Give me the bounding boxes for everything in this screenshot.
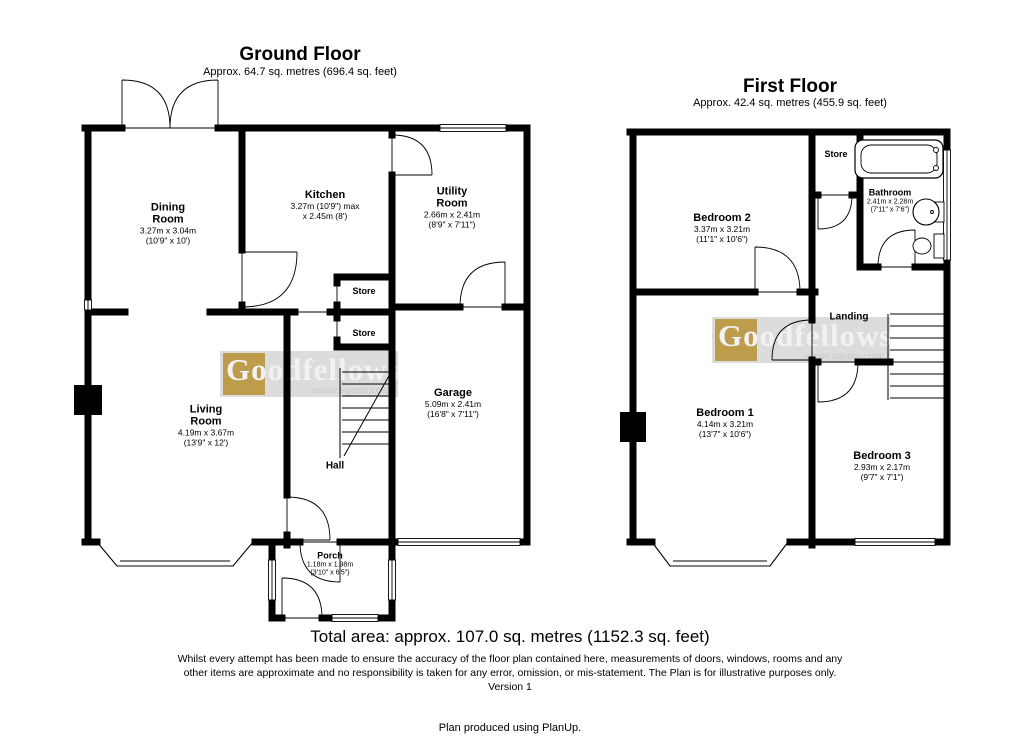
- bath-tap: [934, 166, 939, 171]
- stairs-first: [888, 314, 944, 400]
- first-floor-title: First Floor: [743, 76, 837, 98]
- room-label-garage: Garage 5.09m x 2.41m (16'8" x 7'11"): [425, 387, 481, 419]
- room-label-store-first-floor: Store: [824, 150, 847, 160]
- version-text: Version 1: [0, 681, 1020, 693]
- toilet-cistern: [934, 234, 944, 258]
- room-label-hall: Hall: [326, 461, 344, 472]
- bath-tap: [934, 148, 939, 153]
- chimney-breast-first: [620, 412, 646, 442]
- ground-floor-title: Ground Floor: [239, 44, 360, 66]
- ground-floor-doors: [122, 80, 505, 618]
- floorplan-page: Goodfellows estate agents.com Goodfellow…: [0, 0, 1020, 741]
- sink-tap: [931, 211, 934, 214]
- room-label-bedroom-2: Bedroom 2 3.37m x 3.21m (11'1" x 10'6"): [693, 212, 750, 244]
- first-floor-subtitle: Approx. 42.4 sq. metres (455.9 sq. feet): [693, 97, 887, 109]
- bay-window-bedroom-1: [652, 542, 788, 566]
- disclaimer-text: Whilst every attempt has been made to en…: [170, 653, 850, 680]
- ground-floor-plan: [74, 80, 527, 622]
- bay-window-living-room: [97, 542, 253, 566]
- disclaimer-block: Whilst every attempt has been made to en…: [0, 653, 1020, 693]
- room-label-store-2: Store: [352, 329, 375, 339]
- sink: [913, 199, 939, 225]
- room-label-kitchen: Kitchen 3.27m (10'9") max x 2.45m (8'): [291, 189, 360, 221]
- ground-floor-subtitle: Approx. 64.7 sq. metres (696.4 sq. feet): [203, 66, 397, 78]
- room-label-utility-room: Utility Room 2.66m x 2.41m (8'9" x 7'11"…: [424, 186, 480, 231]
- room-label-bedroom-3: Bedroom 3 2.93m x 2.17m (9'7" x 7'1"): [853, 450, 910, 482]
- room-label-dining-room: Dining Room 3.27m x 3.04m (10'9" x 10'): [140, 202, 196, 247]
- room-label-bedroom-1: Bedroom 1 4.14m x 3.21m (13'7" x 10'6"): [696, 407, 753, 439]
- room-label-landing: Landing: [830, 312, 869, 323]
- room-label-store-1: Store: [352, 287, 375, 297]
- room-label-living-room: Living Room 4.19m x 3.67m (13'9" x 12'): [178, 404, 234, 449]
- room-label-porch: Porch 1.18m x 1.98m (3'10" x 6'5"): [307, 552, 353, 579]
- total-area-text: Total area: approx. 107.0 sq. metres (11…: [0, 627, 1020, 647]
- toilet-bowl: [913, 238, 931, 254]
- footer-credit: Plan produced using PlanUp.: [0, 722, 1020, 734]
- stairs-ground: [340, 368, 390, 458]
- chimney-breast-ground: [74, 385, 102, 415]
- bathtub-inner: [861, 145, 937, 173]
- first-floor-doors: [755, 195, 915, 402]
- room-label-bathroom: Bathroom 2.41m x 2.28m (7'11" x 7'6"): [867, 189, 913, 216]
